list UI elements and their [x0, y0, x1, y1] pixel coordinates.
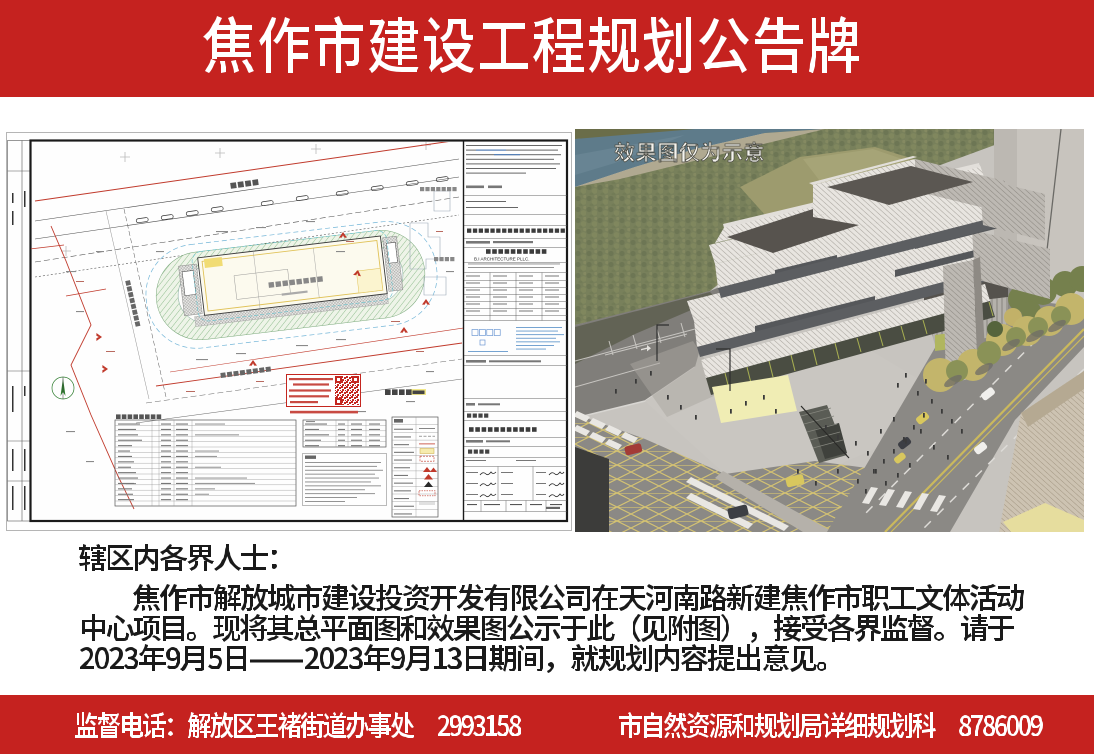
svg-text:B.I ARCHITECTURE PLLC.: B.I ARCHITECTURE PLLC.: [474, 257, 530, 262]
